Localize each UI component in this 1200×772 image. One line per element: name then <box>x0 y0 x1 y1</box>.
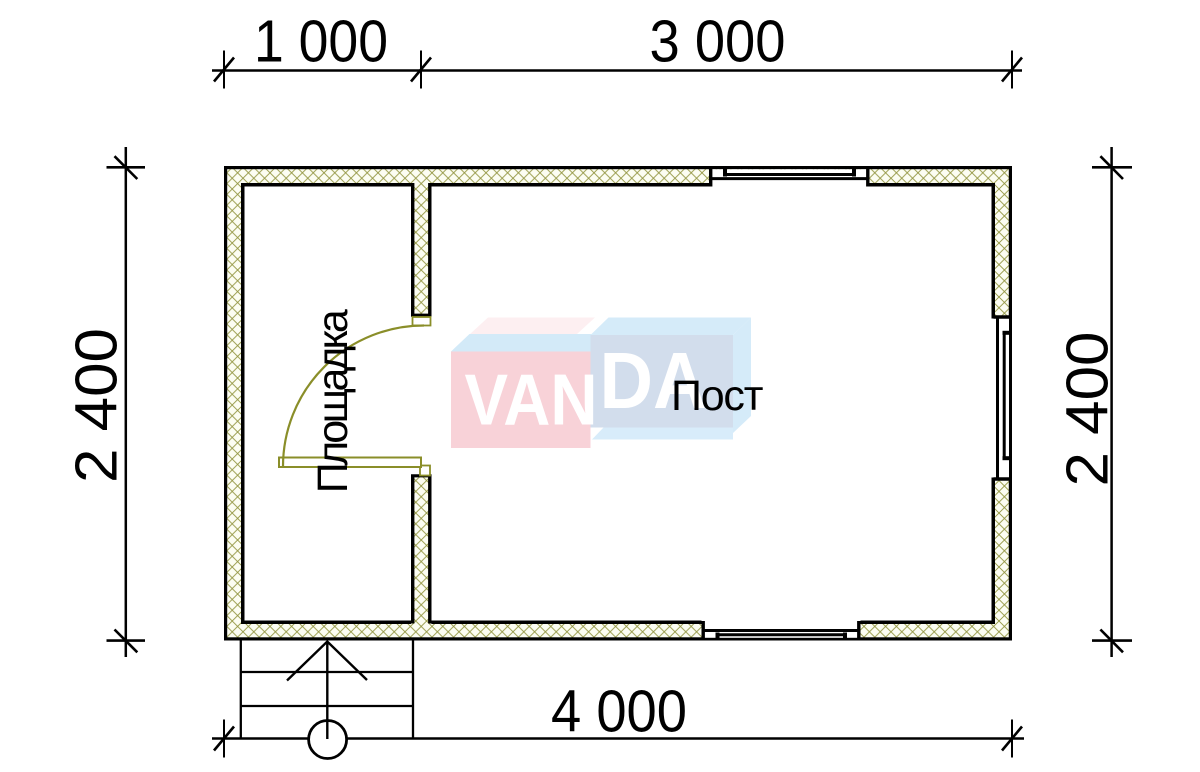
svg-text:2 400: 2 400 <box>1055 332 1121 487</box>
svg-text:Площадка: Площадка <box>309 309 357 493</box>
svg-text:VAN: VAN <box>465 361 598 441</box>
svg-text:3 000: 3 000 <box>650 9 786 75</box>
svg-text:4 000: 4 000 <box>551 679 687 745</box>
svg-text:1 000: 1 000 <box>254 9 388 75</box>
svg-text:2 400: 2 400 <box>64 328 130 483</box>
svg-text:Пост: Пост <box>671 372 763 420</box>
